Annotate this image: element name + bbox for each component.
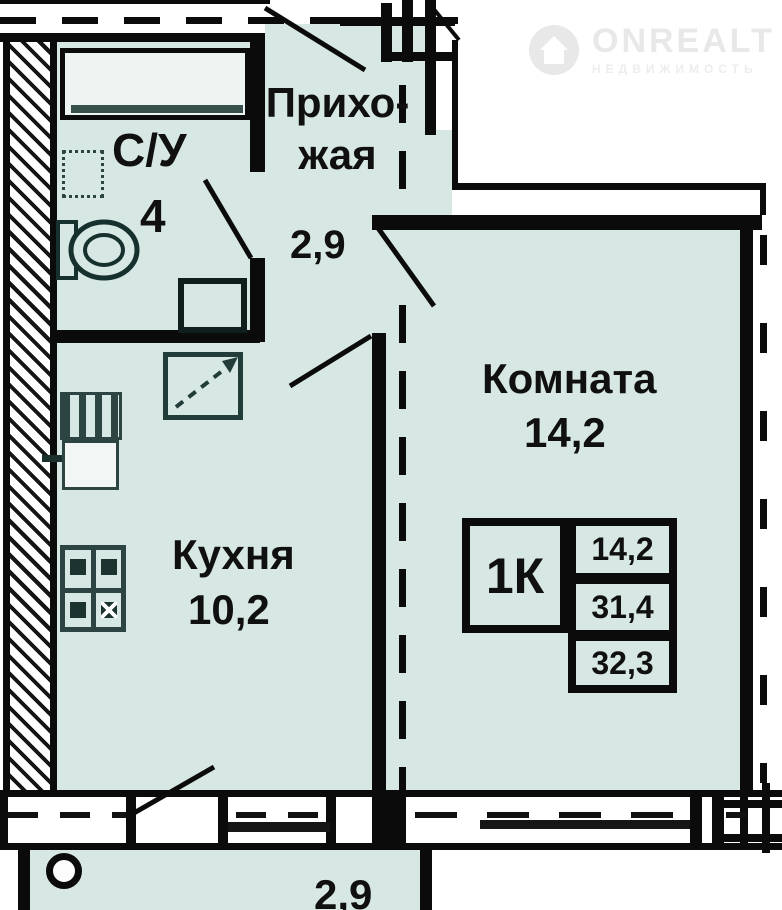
floor-area-value: 31,4 [591, 589, 653, 626]
niche-left-line [452, 40, 458, 190]
room-partition-dashed-lower [399, 305, 406, 790]
info-table-row-total: 32,3 [568, 633, 677, 693]
balcony-area: 2,9 [314, 874, 372, 910]
window-jamb-4 [326, 790, 336, 850]
corridor-top-line [0, 0, 270, 4]
niche-right-stub [760, 183, 766, 215]
info-table-type-cell: 1К [462, 518, 568, 633]
stove-burner-cross [101, 602, 117, 618]
flat-top-wall [0, 33, 265, 42]
corner-grid-hbar-1 [724, 800, 782, 808]
hallway-floor-ext [425, 130, 452, 218]
balcony-left-wall [18, 843, 30, 910]
stove-burner [101, 559, 117, 575]
hallway-label-line1: Прихо- [255, 82, 420, 124]
window-centerline-2 [236, 812, 326, 818]
info-table-row-floor: 31,4 [568, 576, 677, 638]
stove-burner [70, 559, 86, 575]
living-room-floor [386, 230, 740, 790]
kitchen-label: Кухня [172, 534, 295, 576]
kitchen-area: 10,2 [188, 589, 270, 631]
balcony-column-circle [46, 853, 82, 889]
vent-shaft [163, 352, 243, 420]
room-right-wall [740, 230, 753, 797]
stove-grid-vline [91, 550, 96, 627]
watermark: ONREALT НЕДВИЖИМОСТЬ [528, 24, 775, 76]
bathtub [60, 48, 250, 120]
kitchen-room-divider-wall [372, 333, 386, 797]
kitchen-counter [62, 440, 119, 490]
wall-pipe-tick [42, 455, 62, 462]
corridor-dashed-line [0, 17, 458, 24]
divider-wall-footing [372, 790, 406, 850]
bathroom-label: С/У [112, 127, 187, 173]
balcony-right-wall [420, 850, 432, 910]
window-centerline-4 [726, 812, 760, 818]
entry-column-hbar-2 [381, 52, 455, 61]
living-area-value: 14,2 [591, 531, 653, 568]
living-room-area: 14,2 [524, 412, 606, 454]
watermark-brand: ONREALT [592, 24, 775, 58]
outer-dashed-line-right [760, 235, 767, 783]
room-top-wall [372, 215, 762, 230]
floor-plan: ONREALT НЕДВИЖИМОСТЬ [0, 0, 782, 910]
watermark-house-icon [528, 24, 580, 76]
window-jamb-1 [0, 790, 8, 850]
hallway-label-line2: жая [255, 134, 420, 176]
window-sill-2 [480, 820, 690, 829]
window-jamb-2 [126, 790, 136, 850]
bathroom-area: 4 [140, 193, 166, 239]
bathroom-sink [178, 278, 247, 333]
window-sill-1 [228, 822, 330, 832]
window-jamb-5 [690, 790, 702, 850]
niche-bottom-line [452, 183, 766, 190]
total-area-value: 32,3 [591, 645, 653, 682]
window-jamb-6 [712, 790, 724, 850]
corner-grid-hbar-2 [724, 834, 782, 842]
info-table-row-living: 14,2 [568, 518, 677, 581]
window-jamb-3 [218, 790, 228, 850]
corner-grid-vbar-2 [762, 783, 770, 853]
kitchen-radiator [60, 392, 122, 440]
flat-type: 1К [486, 547, 544, 605]
window-centerline-3 [415, 812, 690, 818]
stove [60, 545, 126, 632]
washing-machine [62, 150, 104, 198]
living-room-label: Комната [482, 358, 656, 400]
watermark-subtitle: НЕДВИЖИМОСТЬ [592, 62, 775, 76]
stove-burner [70, 602, 86, 618]
hallway-area: 2,9 [290, 225, 346, 265]
outer-wall-hatched [3, 42, 57, 790]
window-centerline-1 [8, 812, 126, 818]
bathtub-inner-edge [71, 105, 243, 113]
